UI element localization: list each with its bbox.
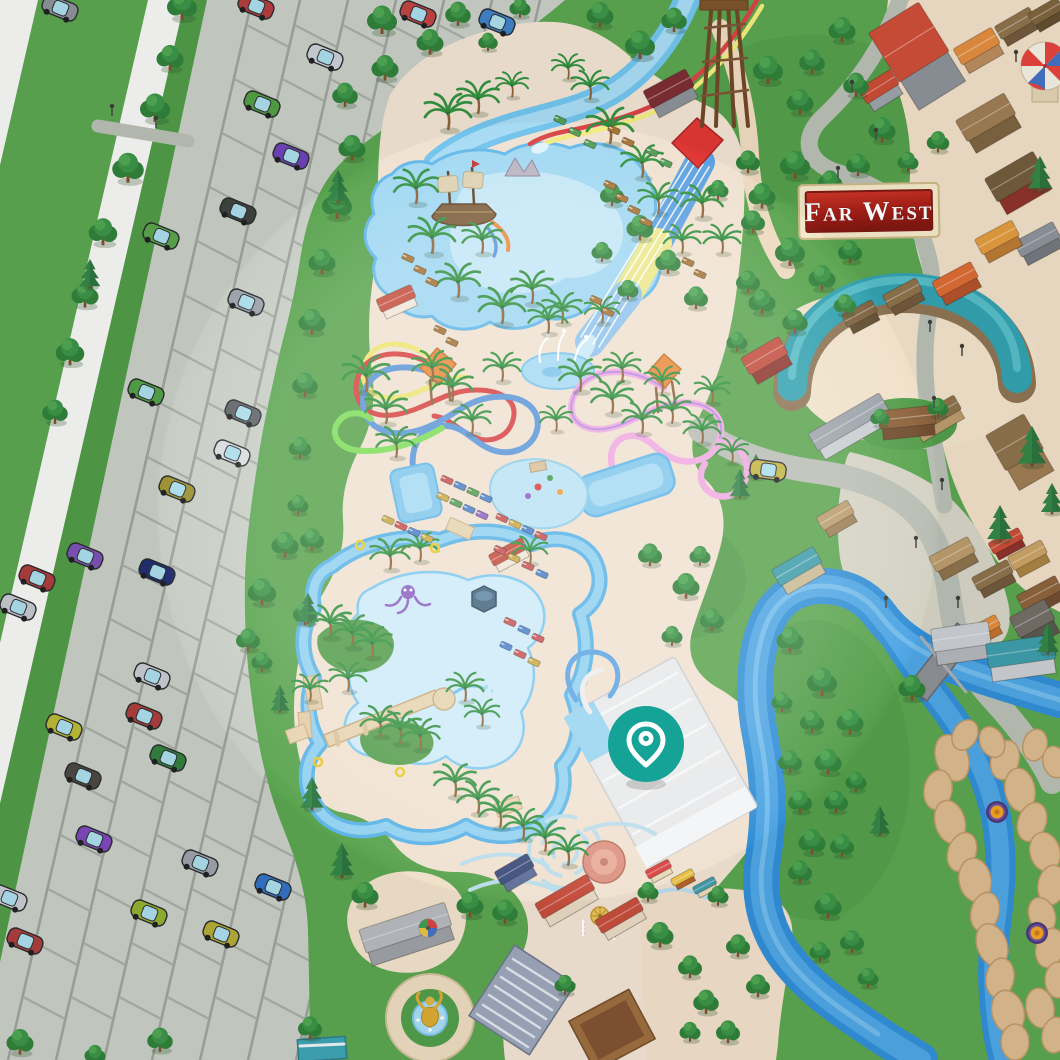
theme-park-map[interactable]: Far West (0, 0, 1060, 1060)
park-map-screenshot: Far West (0, 0, 1060, 1060)
highlight-overlay (0, 0, 1060, 1060)
